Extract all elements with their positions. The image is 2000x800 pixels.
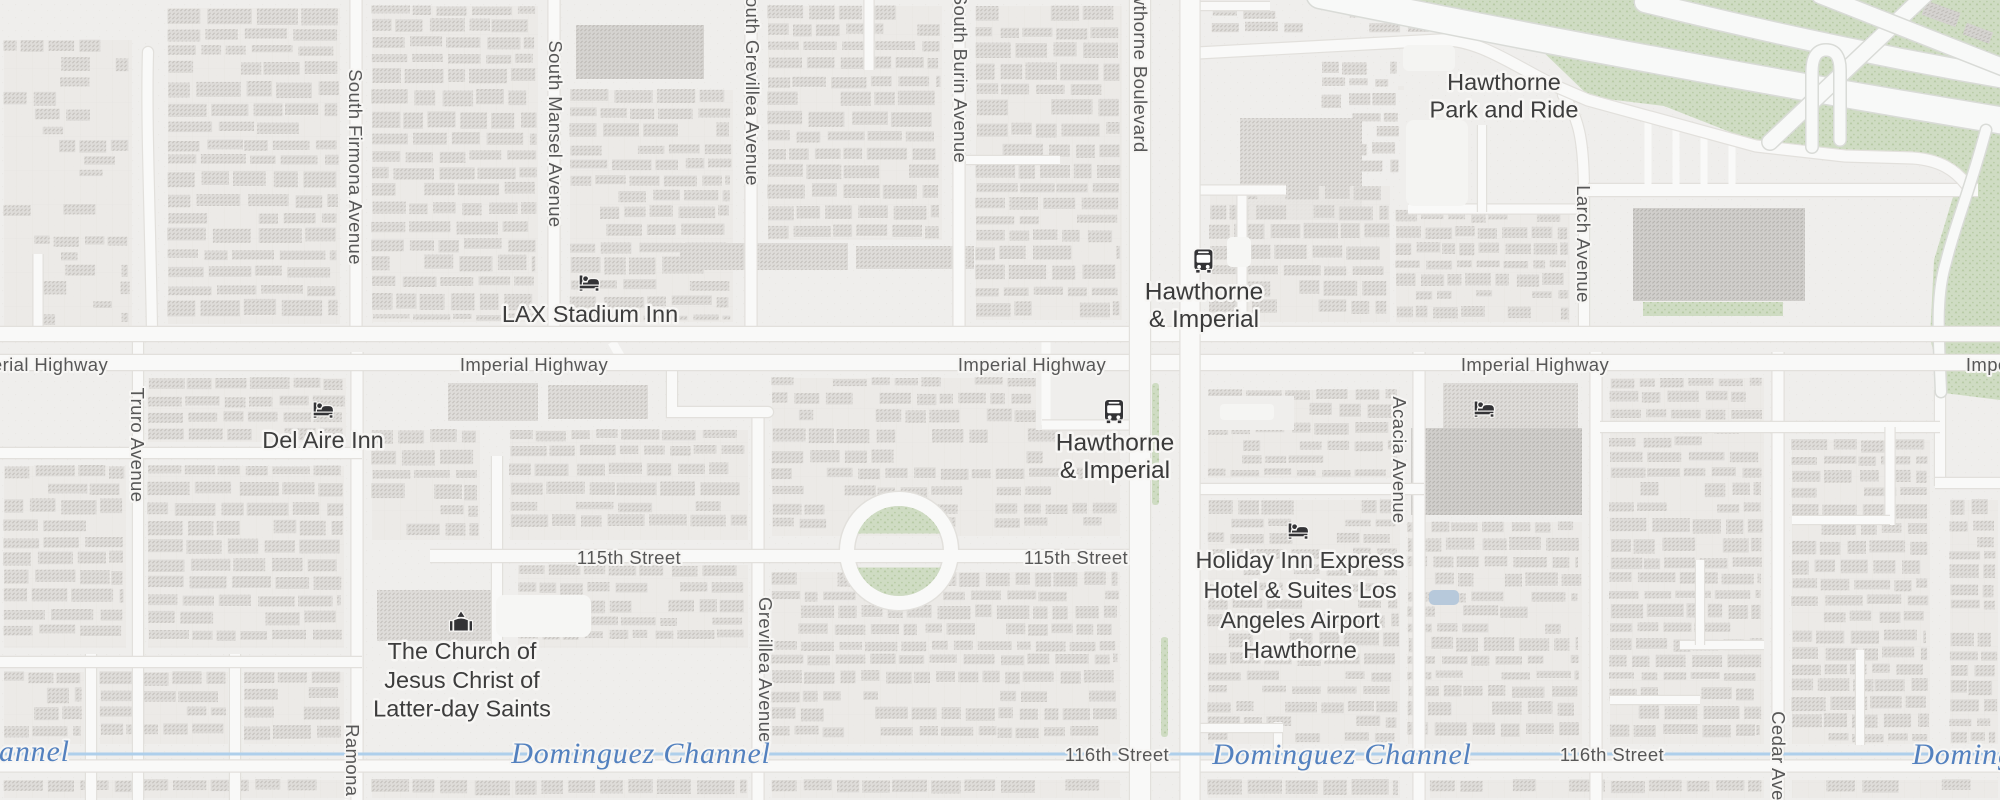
svg-text:South Mansel Avenue: South Mansel Avenue <box>545 40 566 227</box>
svg-text:& Imperial: & Imperial <box>1060 457 1170 484</box>
svg-text:Cedar Avenue: Cedar Avenue <box>1768 711 1789 800</box>
svg-text:South Grevillea Avenue: South Grevillea Avenue <box>742 0 763 186</box>
svg-text:Dominguez Channel: Dominguez Channel <box>0 735 70 768</box>
svg-text:Imperial Highway: Imperial Highway <box>1461 354 1610 375</box>
svg-text:Grevillea Avenue: Grevillea Avenue <box>755 597 776 743</box>
svg-text:Imperial Highway: Imperial Highway <box>460 354 609 375</box>
svg-text:Hawthorne: Hawthorne <box>1145 278 1263 305</box>
svg-text:Ramona Avenue: Ramona Avenue <box>342 724 363 800</box>
svg-text:Dominguez Channel: Dominguez Channel <box>510 737 770 770</box>
svg-text:Jesus Christ of: Jesus Christ of <box>384 667 540 693</box>
svg-text:South Firmona Avenue: South Firmona Avenue <box>345 69 366 265</box>
svg-text:Hawthorne Boulevard: Hawthorne Boulevard <box>1130 0 1151 153</box>
svg-text:Imperial Highway: Imperial Highway <box>0 354 108 375</box>
svg-text:Acacia Avenue: Acacia Avenue <box>1389 396 1410 523</box>
svg-text:Del Aire Inn: Del Aire Inn <box>262 427 383 453</box>
svg-text:The Church of: The Church of <box>388 638 537 664</box>
svg-text:115th Street: 115th Street <box>577 547 681 568</box>
svg-text:Latter-day Saints: Latter-day Saints <box>373 695 551 721</box>
svg-text:Truro Avenue: Truro Avenue <box>127 388 148 503</box>
svg-text:Angeles Airport: Angeles Airport <box>1220 607 1380 633</box>
svg-text:Hawthorne: Hawthorne <box>1243 637 1357 663</box>
svg-text:Larch Avenue: Larch Avenue <box>1573 185 1594 303</box>
svg-text:LAX Stadium Inn: LAX Stadium Inn <box>502 301 678 327</box>
svg-text:116th Street: 116th Street <box>1065 744 1169 765</box>
svg-text:Hawthorne: Hawthorne <box>1447 69 1561 95</box>
svg-text:Imperial Highway: Imperial Highway <box>958 354 1107 375</box>
svg-text:South Burin Avenue: South Burin Avenue <box>950 0 971 163</box>
svg-text:116th Street: 116th Street <box>1560 744 1664 765</box>
svg-text:Imperial Highway: Imperial Highway <box>1966 354 2000 375</box>
svg-text:Hotel & Suites Los: Hotel & Suites Los <box>1203 577 1396 603</box>
svg-text:Dominguez Channel: Dominguez Channel <box>1211 738 1471 771</box>
svg-text:Dominguez Channel: Dominguez Channel <box>1911 738 2000 771</box>
svg-text:& Imperial: & Imperial <box>1149 306 1259 333</box>
svg-text:Hawthorne: Hawthorne <box>1056 429 1174 456</box>
svg-text:115th Street: 115th Street <box>1024 547 1128 568</box>
svg-text:Park and Ride: Park and Ride <box>1430 97 1579 123</box>
svg-text:Holiday Inn Express: Holiday Inn Express <box>1196 547 1405 573</box>
